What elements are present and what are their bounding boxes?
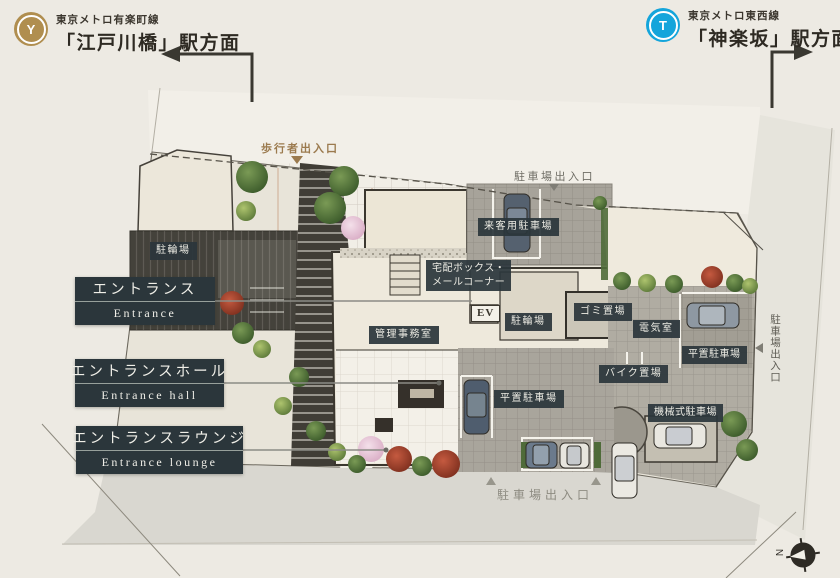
car-mechanical	[654, 424, 706, 448]
tree	[306, 421, 326, 441]
label-motorcycle: バイク置場	[599, 365, 668, 383]
tree	[726, 274, 744, 292]
car-flat-right	[687, 303, 739, 328]
compass-icon	[784, 536, 822, 574]
station-direction-right: 「神楽坂」駅方面	[688, 24, 840, 51]
label-delivery-line1: 宅配ボックス・	[432, 262, 505, 276]
tree	[593, 196, 607, 210]
tree	[742, 278, 758, 294]
parking-entrance-bottom-arrow-left-icon	[486, 477, 496, 485]
legend-entrance-hall-en: Entrance hall	[75, 384, 224, 408]
label-flat-parking-bottom: 平置駐車場	[494, 390, 564, 408]
tree	[274, 397, 292, 415]
tree	[253, 340, 271, 358]
tree	[236, 161, 268, 193]
tree	[736, 439, 758, 461]
badge-letter: T	[649, 11, 678, 40]
site-plan-page: Y 東京メトロ有楽町線 「江戸川橋」駅方面 T 東京メトロ東西線 「神楽坂」駅方…	[0, 0, 840, 578]
label-elevator: EV	[471, 305, 500, 322]
label-bicycle-left: 駐輪場	[150, 242, 197, 260]
tree	[289, 367, 309, 387]
legend-entrance-lounge-jp: エントランスラウンジ	[76, 426, 243, 450]
parking-entrance-bottom-arrow-right-icon	[591, 477, 601, 485]
station-direction-left: 「江戸川橋」駅方面	[56, 28, 241, 55]
blossom-tree	[341, 216, 365, 240]
car-flat-bottom	[464, 380, 489, 434]
legend-entrance-lounge: エントランスラウンジ Entrance lounge	[76, 426, 243, 474]
label-delivery-line2: メールコーナー	[432, 276, 505, 290]
pedestrian-entrance-label: 歩行者出入口	[261, 140, 339, 156]
legend-entrance-hall: エントランスホール Entrance hall	[75, 359, 224, 407]
header-left: Y 東京メトロ有楽町線 「江戸川橋」駅方面	[14, 12, 241, 55]
line-name-right: 東京メトロ東西線	[688, 8, 840, 23]
legend-entrance-hall-jp: エントランスホール	[75, 359, 224, 383]
label-mechanical-parking: 機械式駐車場	[648, 404, 723, 422]
pedestrian-entrance-arrow-icon	[291, 156, 303, 164]
parking-entrance-right-label: 駐車場出入口	[767, 314, 782, 383]
badge-letter: Y	[17, 15, 46, 44]
compass-north-label: N	[773, 549, 784, 556]
parking-entrance-bottom-label: 駐車場出入口	[497, 486, 593, 503]
metro-tozai-line-icon: T	[646, 8, 680, 42]
label-visitor-parking: 来客用駐車場	[478, 218, 559, 236]
legend-entrance-lounge-en: Entrance lounge	[76, 451, 243, 475]
shrub-red	[220, 291, 244, 315]
tree	[348, 455, 366, 473]
parking-entrance-top-label: 駐車場出入口	[514, 168, 595, 184]
car-small-blue	[526, 442, 557, 468]
label-garbage: ゴミ置場	[574, 303, 632, 321]
label-electrical: 電気室	[633, 320, 680, 338]
metro-yurakucho-line-icon: Y	[14, 12, 48, 46]
car-exiting	[612, 443, 637, 498]
tree	[665, 275, 683, 293]
shrub-red	[432, 450, 460, 478]
line-name-left: 東京メトロ有楽町線	[56, 12, 241, 27]
tree	[329, 166, 359, 196]
adjacent-building	[138, 150, 233, 231]
label-flat-parking-right: 平置駐車場	[682, 346, 747, 364]
legend-entrance-en: Entrance	[75, 302, 215, 326]
tree	[314, 192, 346, 224]
parking-entrance-right-arrow-icon	[755, 343, 763, 353]
label-office: 管理事務室	[369, 326, 439, 344]
tree	[236, 201, 256, 221]
tree	[232, 322, 254, 344]
parking-entrance-top-arrow-icon	[549, 184, 559, 191]
shrub-red	[386, 446, 412, 472]
header-right: T 東京メトロ東西線 「神楽坂」駅方面	[646, 8, 840, 51]
tree	[412, 456, 432, 476]
tree	[328, 443, 346, 461]
building-upper-mass	[365, 190, 467, 252]
label-bicycle-center: 駐輪場	[505, 313, 552, 331]
stairs	[390, 255, 420, 295]
tree	[613, 272, 631, 290]
label-delivery-box: 宅配ボックス・ メールコーナー	[426, 260, 511, 291]
shrub-red	[701, 266, 723, 288]
legend-entrance: エントランス Entrance	[75, 277, 215, 325]
tree	[638, 274, 656, 292]
tree	[721, 411, 747, 437]
car-small-white	[560, 443, 589, 468]
legend-entrance-jp: エントランス	[75, 277, 215, 301]
